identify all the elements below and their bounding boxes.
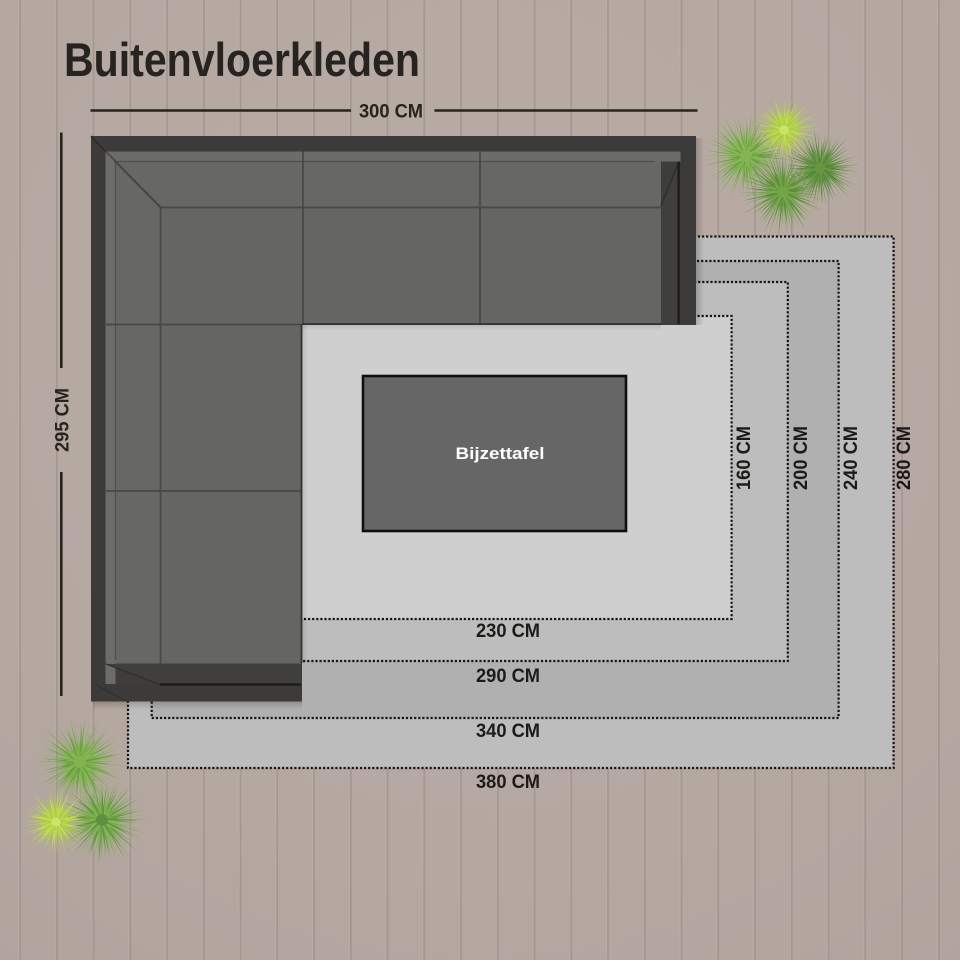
svg-text:380 CM: 380 CM	[476, 771, 540, 793]
svg-text:Bijzettafel: Bijzettafel	[456, 444, 545, 463]
svg-text:340 CM: 340 CM	[476, 720, 540, 742]
svg-text:Buitenvloerkleden: Buitenvloerkleden	[64, 34, 420, 87]
svg-text:230 CM: 230 CM	[476, 620, 540, 642]
svg-text:295 CM: 295 CM	[51, 388, 73, 452]
svg-text:280 CM: 280 CM	[893, 426, 915, 490]
svg-text:160 CM: 160 CM	[733, 426, 755, 490]
svg-text:300 CM: 300 CM	[359, 100, 423, 122]
svg-text:240 CM: 240 CM	[840, 426, 862, 490]
svg-text:200 CM: 200 CM	[790, 426, 812, 490]
svg-text:290 CM: 290 CM	[476, 665, 540, 687]
